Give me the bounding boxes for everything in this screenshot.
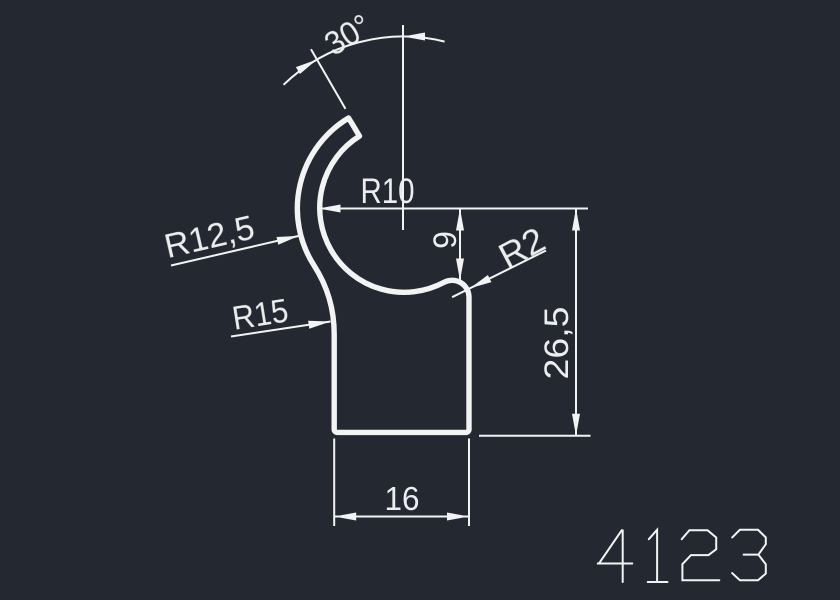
svg-text:9: 9: [427, 231, 463, 249]
svg-text:R10: R10: [361, 172, 415, 211]
svg-text:16: 16: [385, 480, 420, 517]
svg-text:26,5: 26,5: [538, 307, 576, 380]
